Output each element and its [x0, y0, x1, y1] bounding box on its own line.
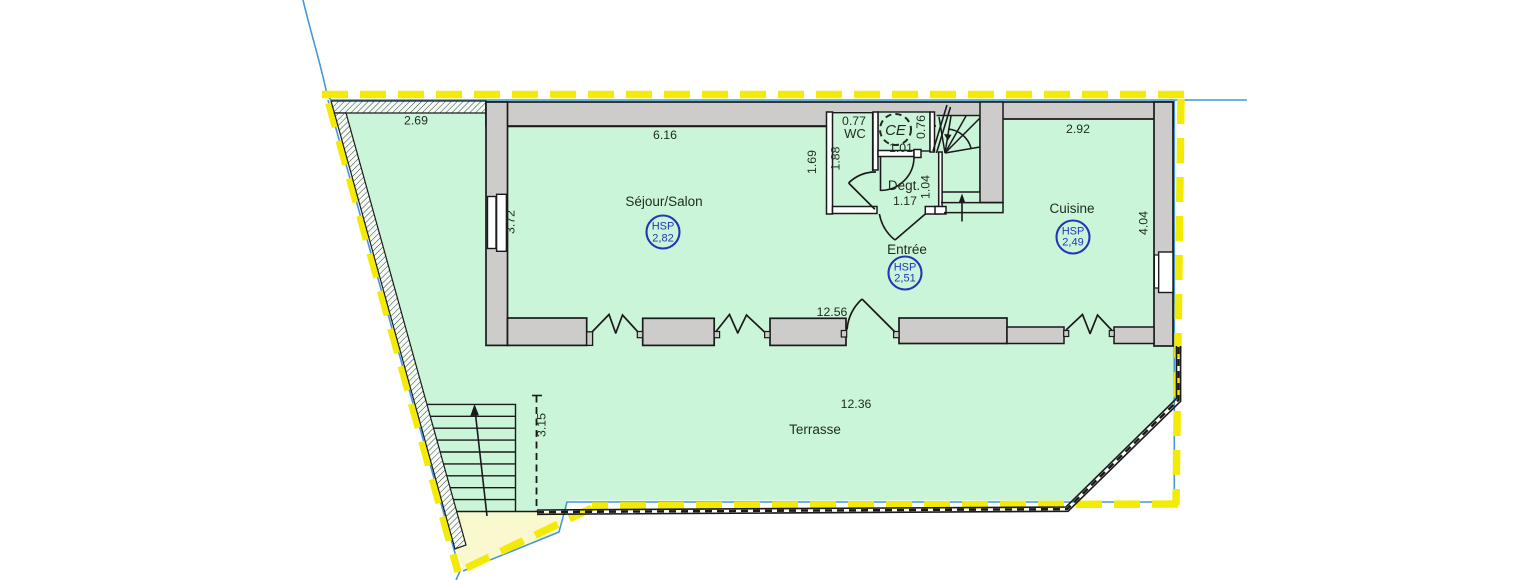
svg-text:1.01: 1.01	[889, 141, 913, 155]
svg-text:Terrasse: Terrasse	[789, 422, 841, 437]
svg-text:WC: WC	[844, 126, 866, 141]
svg-text:3.15: 3.15	[535, 413, 549, 437]
svg-text:1.17: 1.17	[893, 194, 917, 208]
svg-text:2.69: 2.69	[404, 114, 428, 128]
svg-text:3.72: 3.72	[504, 210, 518, 234]
svg-text:12.56: 12.56	[817, 305, 848, 319]
svg-text:4.04: 4.04	[1137, 211, 1151, 235]
svg-text:0.76: 0.76	[914, 115, 928, 139]
svg-text:2,49: 2,49	[1062, 237, 1083, 249]
svg-text:2.92: 2.92	[1066, 122, 1090, 136]
svg-text:6.16: 6.16	[653, 128, 677, 142]
svg-text:2,51: 2,51	[894, 273, 915, 285]
svg-text:HSP: HSP	[652, 221, 675, 233]
svg-text:1.69: 1.69	[805, 150, 819, 174]
svg-text:Séjour/Salon: Séjour/Salon	[625, 194, 702, 209]
svg-text:CE: CE	[885, 122, 907, 139]
svg-text:Entrée: Entrée	[887, 242, 927, 257]
svg-text:1.04: 1.04	[919, 175, 933, 199]
svg-text:Cuisine: Cuisine	[1049, 201, 1094, 216]
svg-text:2,82: 2,82	[652, 233, 673, 245]
svg-text:12.36: 12.36	[841, 397, 872, 411]
svg-text:Degt.: Degt.	[888, 178, 920, 193]
svg-text:1.88: 1.88	[829, 146, 843, 170]
